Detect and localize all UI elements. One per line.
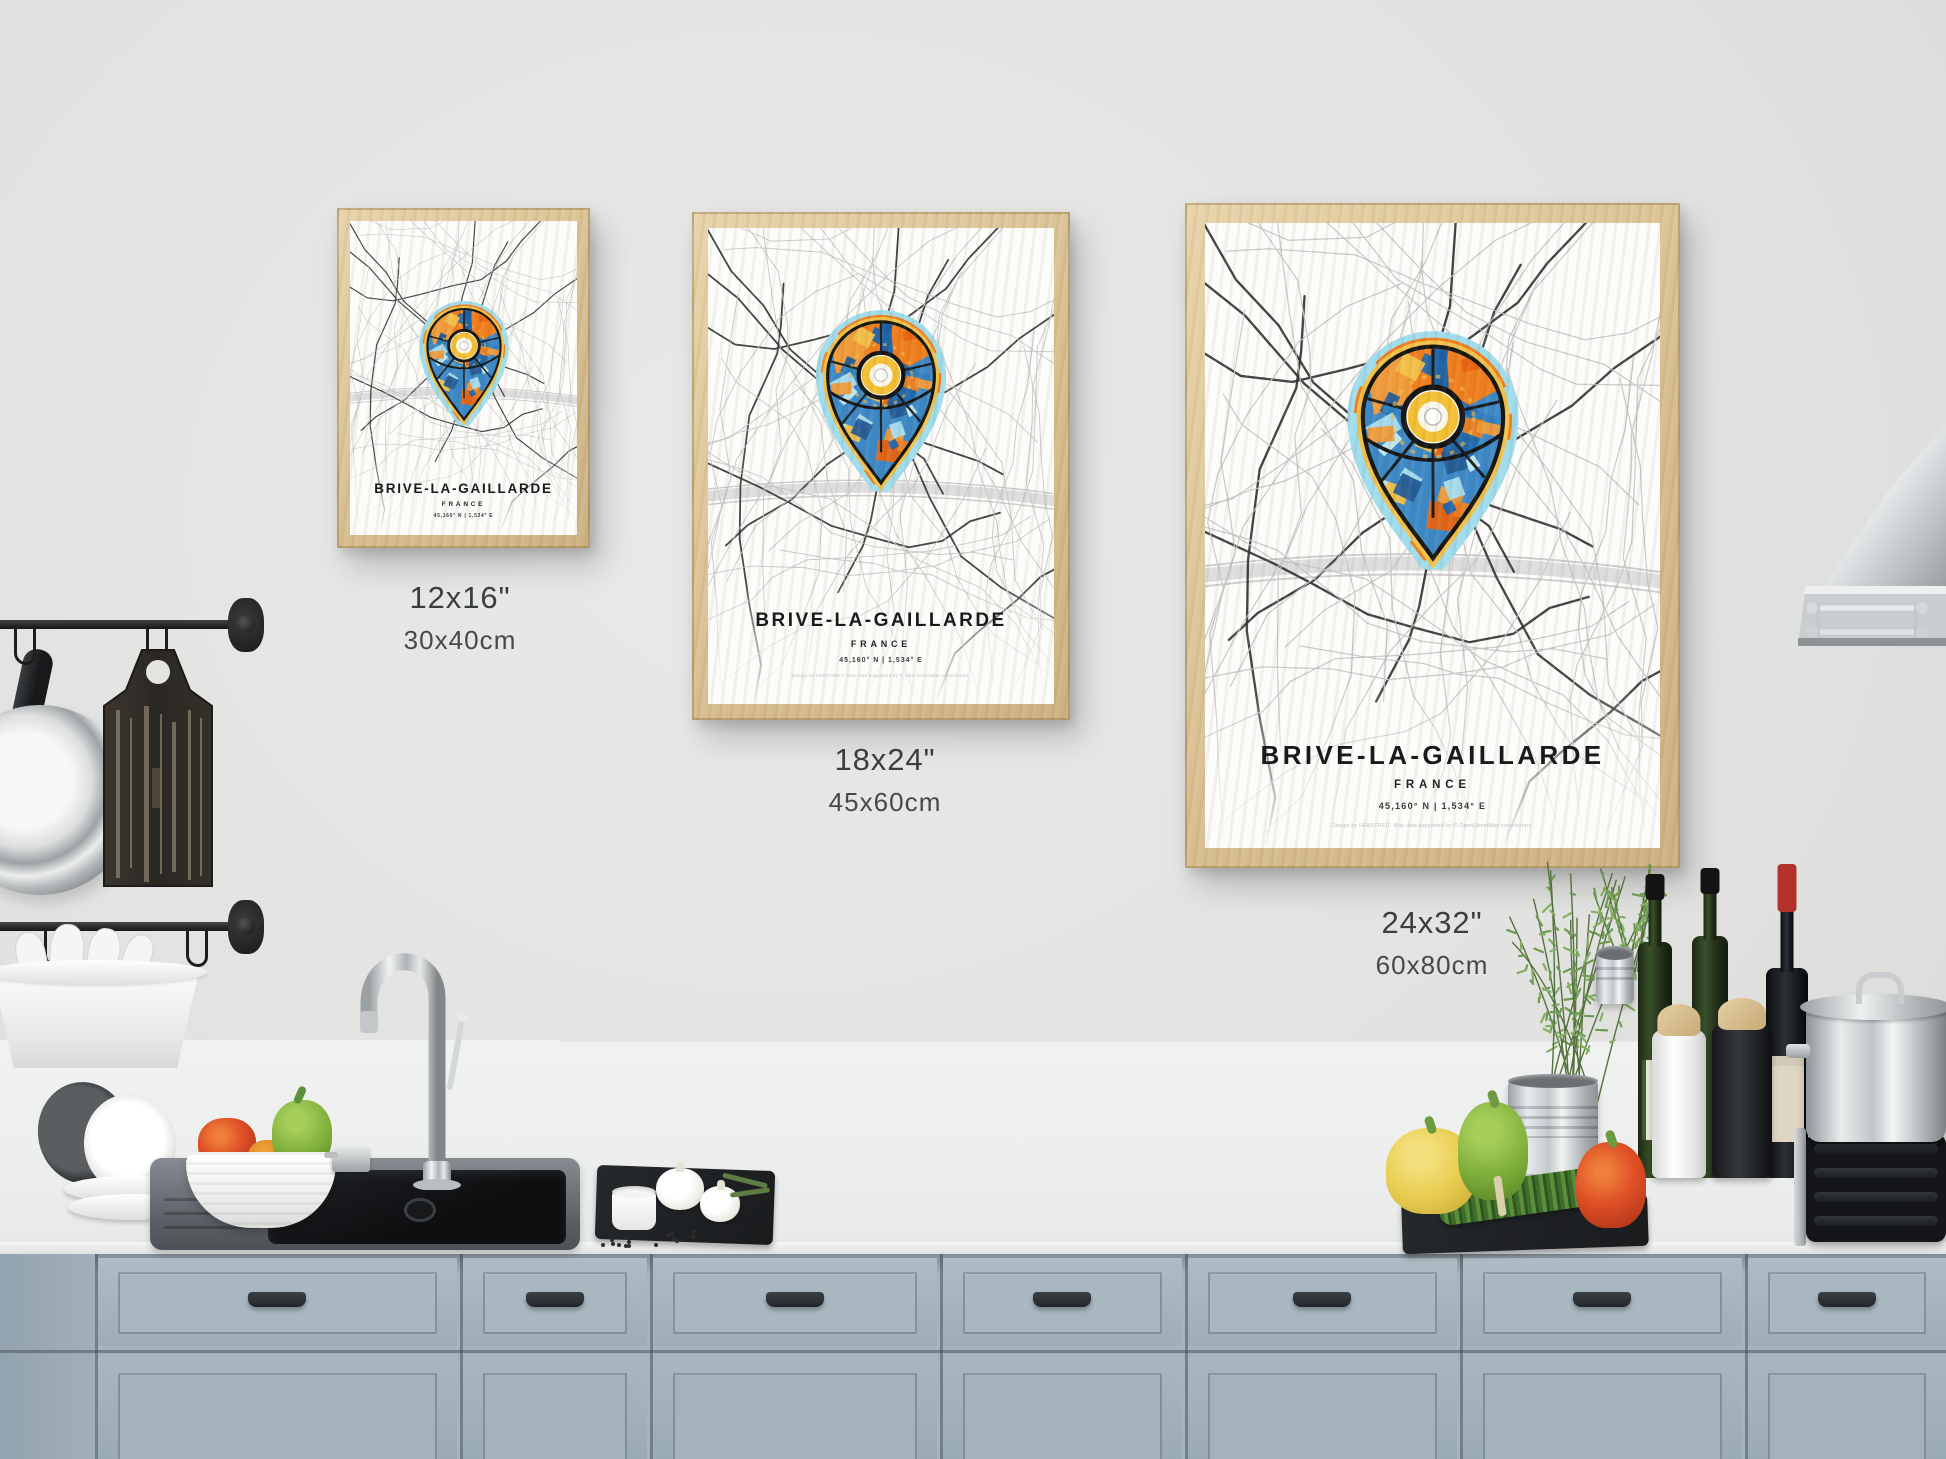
size-inches: 18x24" bbox=[725, 742, 1045, 778]
wine-capsule bbox=[1778, 864, 1797, 912]
peppercorn bbox=[627, 1240, 631, 1244]
bottle-neck bbox=[1781, 908, 1794, 972]
grate-bar bbox=[1814, 1144, 1938, 1154]
grate-bar bbox=[1814, 1216, 1938, 1226]
grate-bar bbox=[1814, 1192, 1938, 1202]
range-hood bbox=[1796, 424, 1946, 676]
faucet bbox=[340, 925, 470, 1190]
peppercorn bbox=[601, 1243, 605, 1247]
bottle-cap bbox=[1701, 868, 1720, 894]
mill-knob bbox=[1657, 1004, 1700, 1036]
size-cm: 30x40cm bbox=[300, 625, 620, 656]
rail-hook bbox=[14, 626, 36, 665]
cooktop-trim bbox=[1794, 1128, 1806, 1246]
size-inches: 12x16" bbox=[300, 580, 620, 616]
cabinet-drawer bbox=[463, 1258, 647, 1346]
cabinet-drawer bbox=[1188, 1258, 1457, 1346]
peppercorn bbox=[670, 1232, 674, 1236]
cabinet-door bbox=[943, 1357, 1182, 1459]
peppercorn bbox=[691, 1235, 695, 1239]
bottle-cap bbox=[1646, 874, 1665, 900]
door-panel bbox=[483, 1373, 627, 1459]
mill-knob bbox=[1718, 998, 1766, 1030]
cabinet-door bbox=[98, 1357, 457, 1459]
wall-rail-bottom-endcap bbox=[228, 900, 264, 954]
door-panel bbox=[1208, 1373, 1437, 1459]
poster-paper: BRIVE-LA-GAILLARDE FRANCE 45,160° N | 1,… bbox=[350, 221, 577, 535]
pepper-mill bbox=[1712, 1024, 1772, 1178]
red-bell-pepper bbox=[1576, 1142, 1646, 1228]
size-cm: 45x60cm bbox=[725, 787, 1045, 818]
bottle-neck bbox=[1649, 896, 1662, 946]
peppercorn bbox=[654, 1243, 658, 1247]
poster-title: BRIVE-LA-GAILLARDE bbox=[1205, 742, 1660, 768]
drawer-handle bbox=[1293, 1292, 1351, 1307]
poster-credit: Design by HEBSTREIT. Map data supported … bbox=[1205, 823, 1660, 829]
utensil-bucket bbox=[0, 958, 208, 1078]
door-panel bbox=[1483, 1373, 1722, 1459]
cabinet-drawer bbox=[943, 1258, 1182, 1346]
peppercorn bbox=[627, 1244, 631, 1248]
cabinet-drawer bbox=[1748, 1258, 1946, 1346]
poster-country: FRANCE bbox=[1205, 779, 1660, 791]
drawer-handle bbox=[1573, 1292, 1631, 1307]
drawer-handle bbox=[1818, 1292, 1876, 1307]
door-panel bbox=[1768, 1373, 1926, 1459]
cabinet-row bbox=[0, 1254, 1946, 1459]
door-panel bbox=[118, 1373, 437, 1459]
bottle-neck bbox=[1704, 890, 1717, 940]
cabinet-drawer bbox=[653, 1258, 937, 1346]
poster-frame-small: BRIVE-LA-GAILLARDE FRANCE 45,160° N | 1,… bbox=[337, 208, 590, 548]
pot-side-handle bbox=[1786, 1044, 1810, 1058]
gas-grate bbox=[1806, 1134, 1946, 1242]
cabinet-door bbox=[1463, 1357, 1742, 1459]
cabinet-door bbox=[463, 1357, 647, 1459]
poster-credit: Design by HEBSTREIT. Map data supported … bbox=[708, 673, 1054, 678]
cabinet-drawer bbox=[1463, 1258, 1742, 1346]
poster-coordinates: 45,160° N | 1,534° E bbox=[350, 513, 577, 519]
poster-text-block: BRIVE-LA-GAILLARDE FRANCE 45,160° N | 1,… bbox=[350, 482, 577, 520]
cutting-board bbox=[92, 648, 224, 892]
poster-title: BRIVE-LA-GAILLARDE bbox=[350, 482, 577, 496]
size-label-small: 12x16" 30x40cm bbox=[300, 580, 620, 656]
size-label-medium: 18x24" 45x60cm bbox=[725, 742, 1045, 818]
poster-text-block: BRIVE-LA-GAILLARDE FRANCE 45,160° N | 1,… bbox=[708, 611, 1054, 678]
cabinet-door bbox=[1188, 1357, 1457, 1459]
wall-rail-top-endcap bbox=[228, 598, 264, 652]
poster-country: FRANCE bbox=[708, 639, 1054, 649]
peppercorns bbox=[596, 1226, 716, 1252]
peppercorn bbox=[617, 1243, 621, 1247]
drawer-handle bbox=[248, 1292, 306, 1307]
wall-rail-bottom bbox=[0, 922, 260, 931]
peppercorn bbox=[672, 1237, 676, 1241]
poster-text-block: BRIVE-LA-GAILLARDE FRANCE 45,160° N | 1,… bbox=[1205, 742, 1660, 829]
cabinet-seam bbox=[0, 1350, 1946, 1353]
cabinet-door bbox=[1748, 1357, 1946, 1459]
cabinet-door bbox=[653, 1357, 937, 1459]
cooking-pot bbox=[1806, 1006, 1946, 1142]
drawer-handle bbox=[1033, 1292, 1091, 1307]
map-pin-icon bbox=[1341, 327, 1525, 570]
poster-paper: BRIVE-LA-GAILLARDE FRANCE 45,160° N | 1,… bbox=[1205, 223, 1660, 848]
drawer-handle bbox=[766, 1292, 824, 1307]
cabinet-drawer bbox=[98, 1258, 457, 1346]
poster-title: BRIVE-LA-GAILLARDE bbox=[708, 611, 1054, 630]
small-tin-pot bbox=[1596, 952, 1634, 1004]
sink-drain bbox=[404, 1198, 436, 1222]
bucket-body bbox=[0, 972, 203, 1068]
map-pin-icon bbox=[811, 307, 951, 492]
peppercorn bbox=[692, 1229, 696, 1233]
pot-lid-handle bbox=[1856, 972, 1904, 1004]
map-pin-icon bbox=[416, 299, 512, 426]
cabinet-end-panel bbox=[0, 1254, 95, 1459]
green-bell-pepper bbox=[1458, 1102, 1528, 1200]
wall-rail-top bbox=[0, 620, 260, 629]
door-panel bbox=[673, 1373, 917, 1459]
kitchen-product-photo: BRIVE-LA-GAILLARDE FRANCE 45,160° N | 1,… bbox=[0, 0, 1946, 1459]
poster-coordinates: 45,160° N | 1,534° E bbox=[1205, 801, 1660, 811]
peppercorn bbox=[611, 1242, 615, 1246]
poster-coordinates: 45,160° N | 1,534° E bbox=[708, 657, 1054, 664]
garlic-bulb bbox=[656, 1168, 704, 1210]
grate-bar bbox=[1814, 1168, 1938, 1178]
peppercorn bbox=[610, 1238, 614, 1242]
drawer-handle bbox=[526, 1292, 584, 1307]
door-panel bbox=[963, 1373, 1162, 1459]
poster-frame-medium: BRIVE-LA-GAILLARDE FRANCE 45,160° N | 1,… bbox=[692, 212, 1070, 720]
poster-paper: BRIVE-LA-GAILLARDE FRANCE 45,160° N | 1,… bbox=[708, 228, 1054, 704]
small-white-cup bbox=[612, 1190, 656, 1230]
poster-country: FRANCE bbox=[350, 501, 577, 508]
poster-frame-large: BRIVE-LA-GAILLARDE FRANCE 45,160° N | 1,… bbox=[1185, 203, 1680, 868]
salt-mill bbox=[1652, 1030, 1706, 1178]
